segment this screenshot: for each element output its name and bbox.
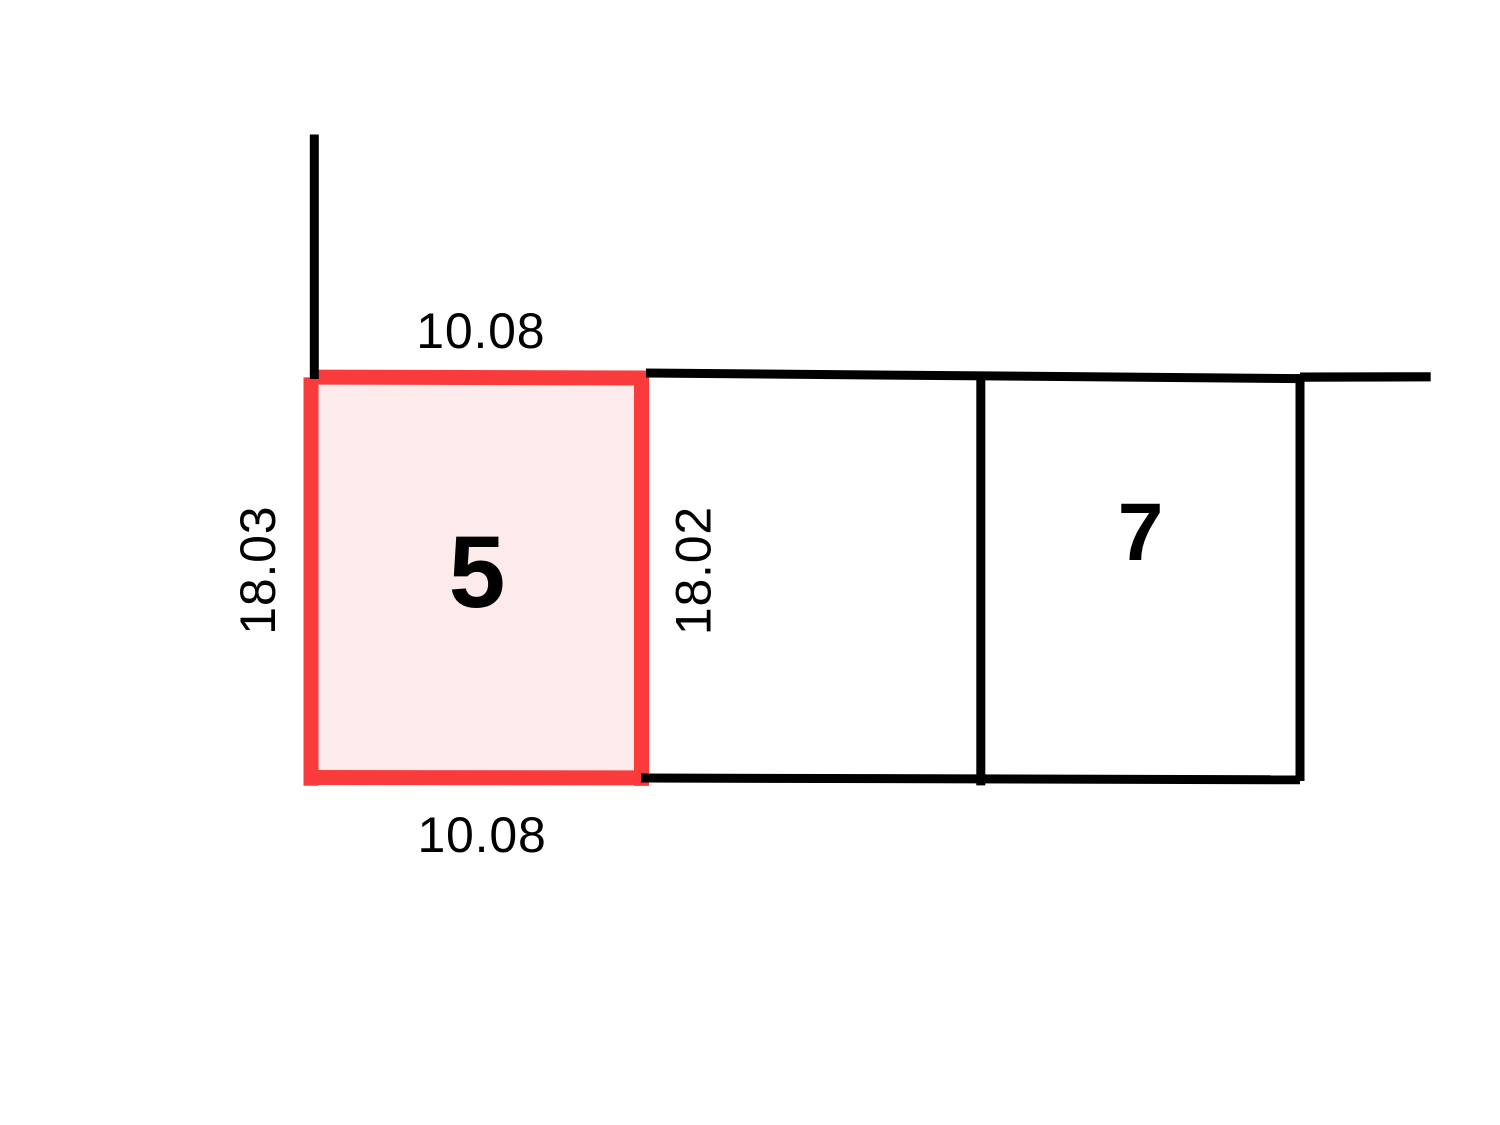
svg-text:18.02: 18.02 (665, 506, 721, 635)
svg-text:10.08: 10.08 (417, 807, 546, 863)
svg-text:5: 5 (449, 515, 506, 629)
svg-text:10.08: 10.08 (416, 303, 545, 359)
svg-text:18.03: 18.03 (230, 506, 286, 635)
svg-text:7: 7 (1118, 487, 1164, 578)
